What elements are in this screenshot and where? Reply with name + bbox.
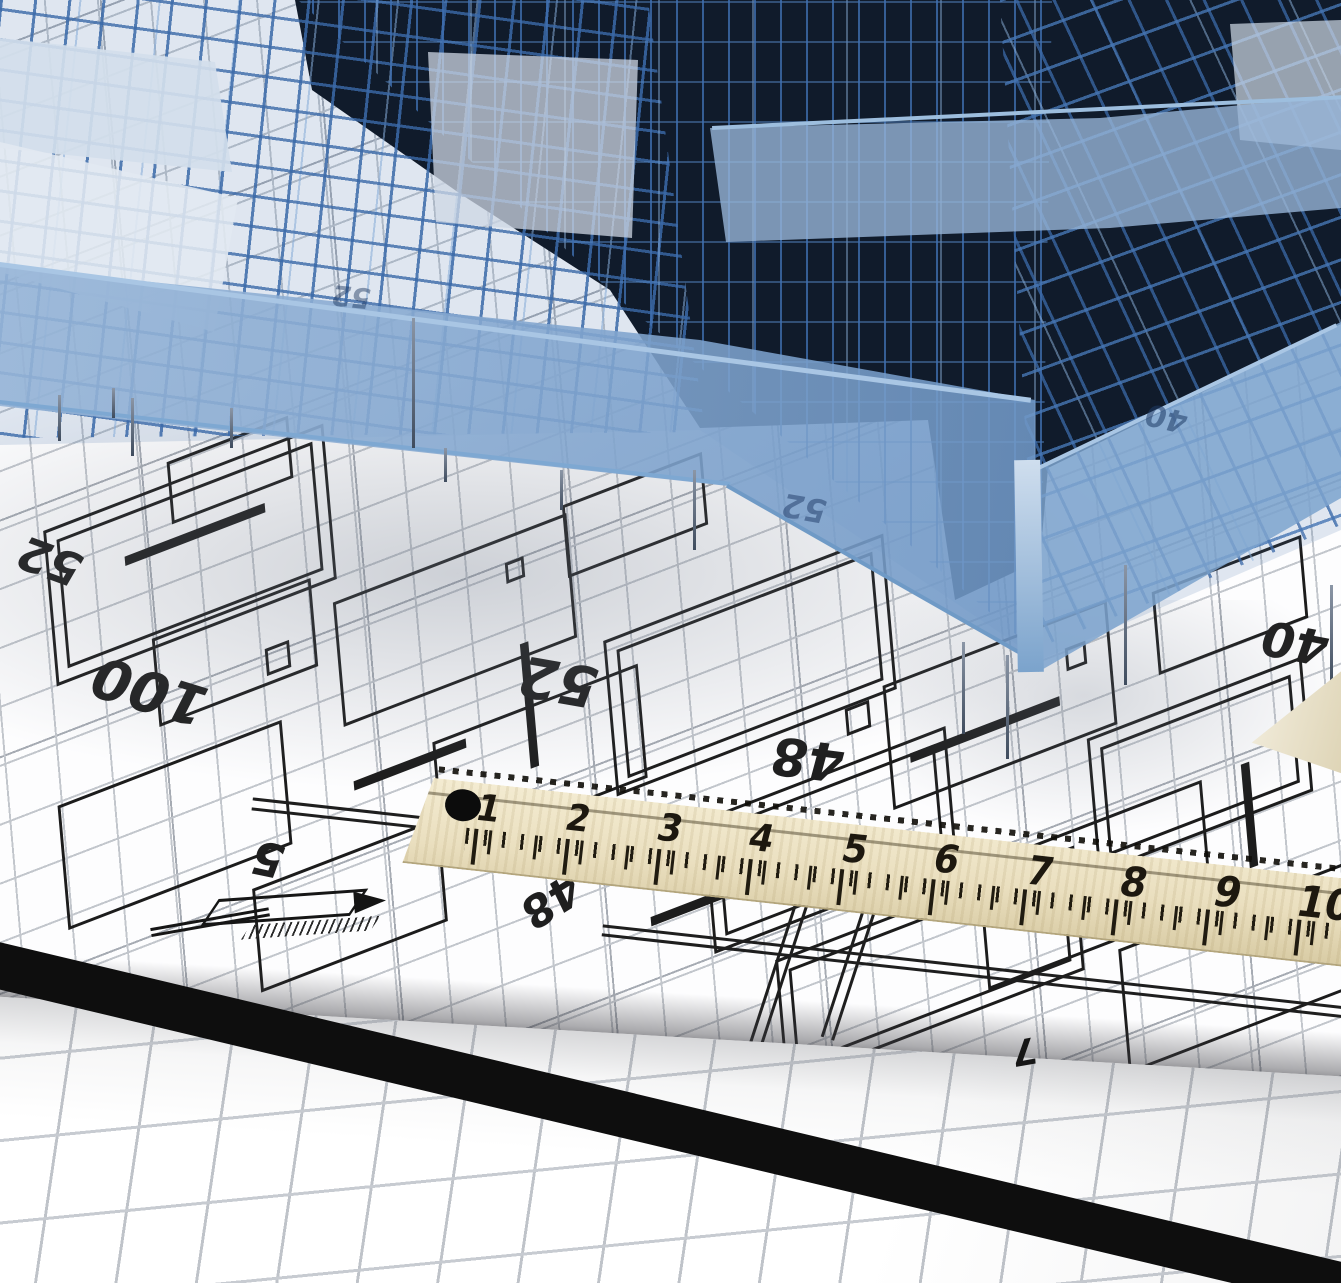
building-shadow	[900, 600, 1341, 840]
ruler-number: 3	[653, 810, 687, 850]
support-pin	[112, 388, 115, 418]
support-pin	[1330, 585, 1333, 685]
corner-column	[1014, 460, 1044, 672]
ruler-number: 2	[562, 800, 595, 839]
support-pin	[230, 408, 233, 448]
support-pin	[1006, 655, 1009, 759]
pen-tip	[353, 889, 386, 913]
support-pin	[962, 642, 965, 734]
support-pin	[58, 395, 61, 441]
support-pin	[412, 318, 415, 448]
support-pin	[131, 398, 134, 456]
dimension-label: 7	[1011, 1030, 1038, 1070]
faint-dimension-label: 52	[329, 280, 375, 312]
blueprint-scene: 52 100 52 48 40 5 48 40 52 52 7	[0, 0, 1341, 1283]
support-pin	[560, 470, 563, 510]
support-pin	[444, 448, 447, 482]
ruler-number: 4	[744, 820, 778, 860]
support-pin	[693, 470, 696, 550]
support-pin	[1124, 565, 1127, 685]
